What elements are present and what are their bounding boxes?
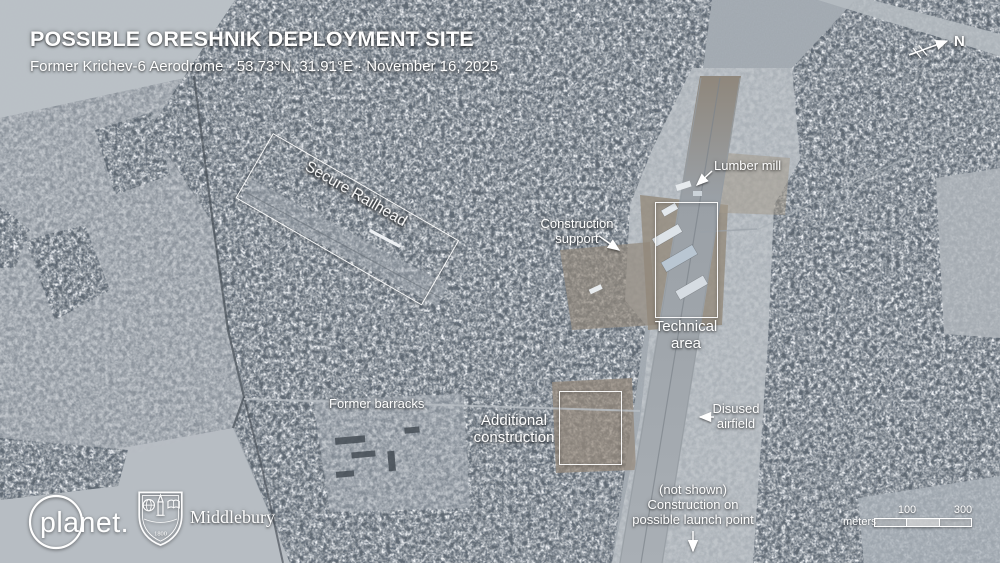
additional-construction-box	[559, 391, 622, 465]
north-arrow	[909, 41, 947, 58]
scale-bar: meters 100 300	[843, 504, 975, 530]
middlebury-founding-year: 1800	[154, 531, 167, 538]
scale-bar-tick-300: 300	[954, 504, 972, 516]
globe-icon	[143, 500, 154, 511]
middlebury-wordmark: Middlebury	[190, 507, 275, 528]
page-subtitle: Former Krichev-6 Aerodrome · 53.73°N, 31…	[30, 58, 498, 75]
scale-bar-tick-100: 100	[898, 504, 916, 516]
construction-support-label: Construction support	[541, 216, 614, 246]
former-barracks-label: Former barracks	[329, 396, 424, 411]
technical-area-label: Technical area	[655, 318, 718, 353]
disused-airfield-label: Disused airfield	[713, 401, 760, 431]
annotated-satellite-image: POSSIBLE ORESHNIK DEPLOYMENT SITE Former…	[0, 0, 1000, 563]
north-label: N	[954, 33, 965, 50]
additional-construction-label: Additional construction	[474, 412, 555, 447]
lumber-mill-label: Lumber mill	[714, 158, 781, 173]
open-book-icon	[168, 500, 179, 508]
technical-area-box	[655, 202, 718, 318]
launch-point-note-label: (not shown) Construction on possible lau…	[632, 482, 753, 527]
middlebury-shield-logo: 1800	[136, 490, 185, 548]
scale-bar-segments	[874, 518, 972, 527]
scale-bar-segment-3	[940, 519, 971, 526]
scale-bar-segment-2	[906, 519, 939, 526]
lumber-mill-arrow	[697, 171, 712, 185]
planet-wordmark: planet.	[40, 507, 129, 539]
scale-bar-segment-1	[875, 519, 906, 526]
annotation-arrows	[0, 0, 1000, 563]
page-title: POSSIBLE ORESHNIK DEPLOYMENT SITE	[30, 27, 474, 52]
scale-bar-unit-label: meters	[843, 516, 877, 528]
chapel-tower-icon	[156, 495, 165, 515]
